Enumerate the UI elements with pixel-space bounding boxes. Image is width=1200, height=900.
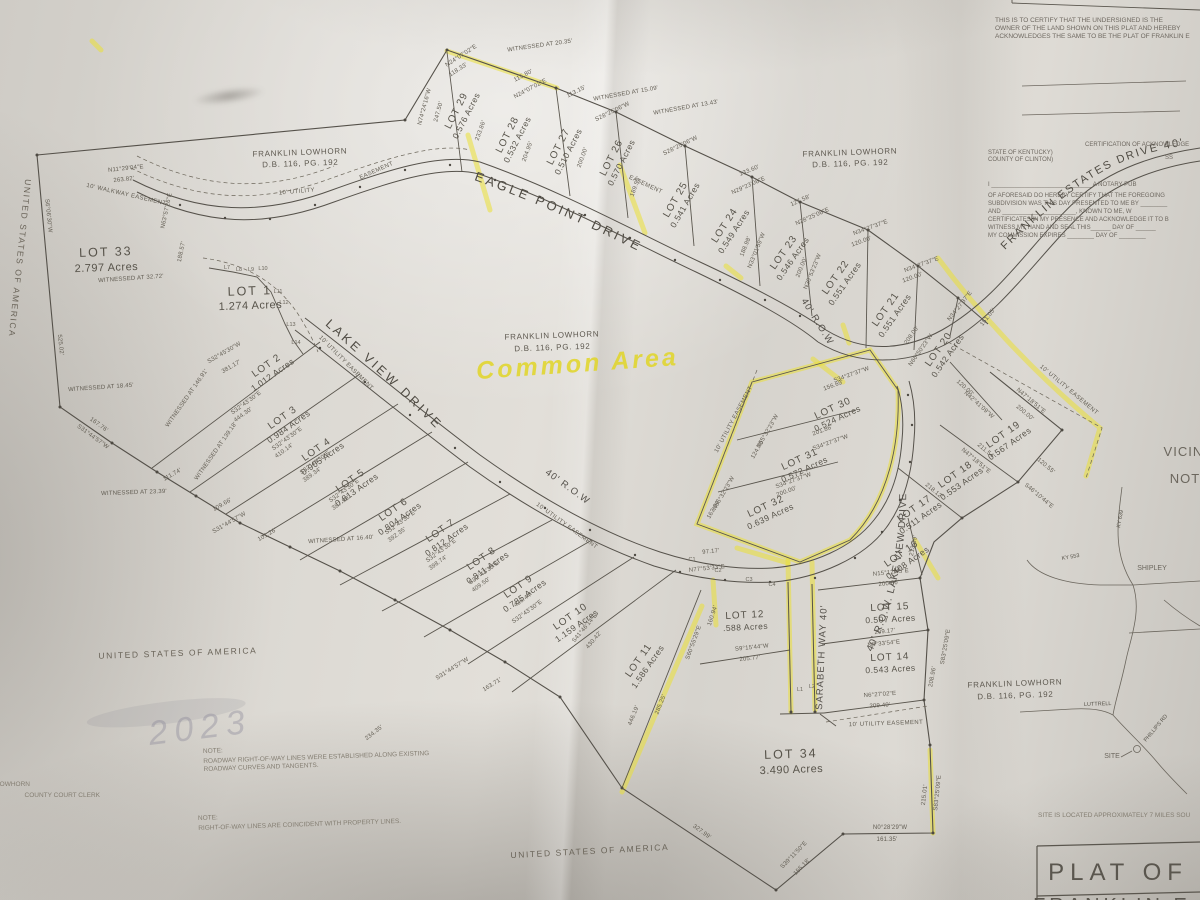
bearing-label: S31°44'57"W xyxy=(435,657,470,682)
bearing-label: S34°27'37"W xyxy=(812,434,849,453)
lot-label: LOT 343.490 Acres xyxy=(759,746,824,777)
svg-text:OWNER OF THE LAND SHOWN ON THI: OWNER OF THE LAND SHOWN ON THIS PLAT AND… xyxy=(995,25,1181,32)
highlighter-note: Common Area xyxy=(475,343,679,385)
bearing-label: N6°27'02"E xyxy=(863,691,896,699)
vicinity-road-label: PHILLIPS RD xyxy=(1143,714,1169,744)
easement-label: 10' UTILITY EASEMENT xyxy=(1038,364,1099,416)
easement-label: 10' UTILITY EASEMENT xyxy=(849,720,924,729)
svg-text:L2: L2 xyxy=(809,684,815,690)
bearing-label: 208.96' xyxy=(928,666,938,688)
bearing-label: 205.77' xyxy=(739,655,760,663)
bearing-label: WITNESSED AT 146.91' xyxy=(165,368,210,428)
svg-text:LOT 15: LOT 15 xyxy=(870,601,910,614)
plat-photo: EAGLE POINT DRIVE LAKE VIEW DRIVE 40' R.… xyxy=(0,0,1200,900)
bearing-label: 161.35' xyxy=(877,837,898,843)
lot-label: LOT 320.639 Acres xyxy=(741,491,796,531)
lot-label: LOT 12.588 Acres xyxy=(722,609,768,633)
bearing-label: 120.55' xyxy=(1036,457,1056,475)
vicinity-subtitle: NOT xyxy=(1170,471,1200,486)
site-marker xyxy=(1134,746,1141,753)
bearing-label: WITNESSED AT 32.72' xyxy=(98,274,164,285)
site-note: SITE IS LOCATED APPROXIMATELY 7 MILES SO… xyxy=(1038,812,1191,819)
bearing-label: 109.66' xyxy=(212,497,233,513)
bearing-label: S28°25'06"W xyxy=(594,101,631,123)
bearing-label: 233.86' xyxy=(475,120,488,142)
svg-text:3.490 Acres: 3.490 Acres xyxy=(759,763,823,777)
bearing-label: 155.18' xyxy=(793,858,812,877)
svg-text:D.B. 116, PG. 192: D.B. 116, PG. 192 xyxy=(977,690,1054,702)
vicinity-road-label: SHIPLEY xyxy=(1137,565,1167,572)
usa-label: UNITED STATES OF AMERICA xyxy=(510,842,669,860)
lot-label: LOT 90.785 Acres xyxy=(495,568,548,614)
svg-text:WITNESS MY HAND AND SEAL THIS_: WITNESS MY HAND AND SEAL THIS______ DAY … xyxy=(988,225,1156,231)
bearing-label: N11°29'04"E xyxy=(108,164,144,174)
lot-label: LOT 21.012 Acres xyxy=(243,347,296,393)
svg-text:FRANKLIN LOWHORN: FRANKLIN LOWHORN xyxy=(802,146,897,158)
clerk-fragment: LOWHORN xyxy=(0,781,30,788)
easement-label: 10' UTILITY xyxy=(279,187,316,196)
bearing-label: S6°06'30"W xyxy=(43,199,53,234)
svg-text:L12: L12 xyxy=(279,300,288,306)
bearing-label: N34°27'37"E xyxy=(947,290,974,322)
owner-label: FRANKLIN LOWHORND.B. 116, PG. 192 xyxy=(802,146,897,169)
bearing-label: WITNESSED AT 16.40' xyxy=(308,535,374,546)
easement-label: 10' UTILITY EASEMENT xyxy=(714,385,754,453)
svg-text:C4: C4 xyxy=(768,582,775,588)
title-block-line2: FRANKLIN E xyxy=(1033,895,1191,900)
svg-text:LOT 33: LOT 33 xyxy=(79,244,133,260)
bearing-label: 200.00' xyxy=(1015,404,1035,422)
lot-label: LOT 230.546 Acres xyxy=(765,229,811,282)
bearing-label: 209.40' xyxy=(869,702,890,709)
bearing-label: 120.00' xyxy=(851,236,873,249)
svg-text:MY COMMISSION EXPIRES ________: MY COMMISSION EXPIRES ________ DAY OF __… xyxy=(988,233,1146,239)
vicinity-road-label: LUTTRELL xyxy=(1084,701,1112,708)
bearing-label: 111.74' xyxy=(162,468,182,483)
bearing-label: N29°23'06"E xyxy=(731,176,767,196)
vicinity-road-label: KY 639 xyxy=(1116,510,1125,529)
lot-label: LOT 220.551 Acres xyxy=(817,254,863,307)
svg-text:L10: L10 xyxy=(258,266,267,272)
svg-text:AND ______________________, KN: AND ______________________, KNOWN TO ME,… xyxy=(988,209,1132,215)
bearing-label: 188.98' xyxy=(739,236,752,258)
easement-label: 10' UTILITY EASEMENT xyxy=(535,502,599,551)
vicinity-site-label: SITE xyxy=(1104,753,1120,760)
svg-text:RIGHT-OF-WAY LINES ARE COINCID: RIGHT-OF-WAY LINES ARE COINCIDENT WITH P… xyxy=(198,818,401,832)
svg-text:THIS IS TO CERTIFY THAT THE UN: THIS IS TO CERTIFY THAT THE UNDERSIGNED … xyxy=(995,17,1164,24)
bearing-label: N74°24'16"W xyxy=(417,88,433,126)
bearing-label: 234.35' xyxy=(364,724,384,742)
svg-text:2.797 Acres: 2.797 Acres xyxy=(74,261,138,275)
svg-text:COUNTY OF CLINTON): COUNTY OF CLINTON) xyxy=(988,157,1053,163)
lot-label: LOT 11.274 Acres xyxy=(218,283,283,313)
svg-text:OF AFORESAID DO HEREBY CERTIFY: OF AFORESAID DO HEREBY CERTIFY THAT THE … xyxy=(988,193,1165,199)
usa-label: UNITED STATES OF AMERICA xyxy=(7,179,34,338)
owner-label: FRANKLIN LOWHORND.B. 116, PG. 192 xyxy=(252,146,347,169)
bearing-label: N0°28'29"W xyxy=(873,825,907,831)
title-block-line1: PLAT OF xyxy=(1048,859,1188,886)
bearing-label: 188.57' xyxy=(177,241,187,263)
svg-text:1.274 Acres: 1.274 Acres xyxy=(218,299,282,313)
svg-text:FRANKLIN LOWHORN: FRANKLIN LOWHORN xyxy=(252,146,347,158)
signature-line xyxy=(1022,111,1180,115)
svg-text:0.507 Acres: 0.507 Acres xyxy=(865,613,916,626)
svg-text:LOT 34: LOT 34 xyxy=(764,746,818,762)
svg-text:C2: C2 xyxy=(714,568,721,574)
svg-text:CERTIFICATION OF ACKNOWLEDGE: CERTIFICATION OF ACKNOWLEDGE xyxy=(1085,142,1189,148)
bearing-label: N28°25'06"E xyxy=(795,207,831,227)
bearing-label: N63°57'26"E xyxy=(160,192,173,229)
svg-text:SUBDIVISION WAS THIS DAY PRESE: SUBDIVISION WAS THIS DAY PRESENTED TO ME… xyxy=(988,201,1168,207)
svg-text:D.B. 116, PG. 192: D.B. 116, PG. 192 xyxy=(262,158,339,170)
svg-text:L9: L9 xyxy=(248,267,254,273)
bearing-label: 327.99' xyxy=(691,824,711,841)
title-block: PLAT OF FRANKLIN E xyxy=(1033,842,1200,900)
svg-text:CERTIFICATES IN MY PRESENCE AN: CERTIFICATES IN MY PRESENCE AND ACKNOWLE… xyxy=(988,217,1169,223)
bearing-label: N34°27'37"E xyxy=(904,256,940,274)
bearing-label: WITNESSED AT 23.39' xyxy=(101,489,167,497)
lot-label: LOT 140.543 Acres xyxy=(864,651,915,676)
svg-text:SS: SS xyxy=(1165,155,1173,161)
bearing-label: S83°25'09"E xyxy=(933,775,943,811)
svg-text:L8: L8 xyxy=(236,267,242,273)
owner-label: FRANKLIN LOWHORND.B. 116, PG. 192 xyxy=(967,677,1062,701)
svg-text:FRANKLIN LOWHORN: FRANKLIN LOWHORN xyxy=(967,677,1062,689)
road-label-eagle-point: EAGLE POINT DRIVE xyxy=(473,169,645,255)
bearing-label: 285.25' xyxy=(654,694,667,716)
svg-text:ACKNOWLEDGES THE SAME TO BE TH: ACKNOWLEDGES THE SAME TO BE THE PLAT OF … xyxy=(995,33,1190,40)
bearing-label: 124.70' xyxy=(750,439,766,460)
svg-text:NOTE:: NOTE: xyxy=(198,814,218,822)
svg-text:I ____________________________: I ______________________________ A NOTAR… xyxy=(988,182,1136,188)
road-label-lake-view: LAKE VIEW DRIVE xyxy=(323,317,446,433)
svg-text:L1: L1 xyxy=(797,687,803,693)
bearing-label: 97.17' xyxy=(702,548,720,556)
lot-labels: LOT 11.274 Acres LOT 21.012 Acres LOT 30… xyxy=(74,86,1033,777)
lot-label: LOT 332.797 Acres xyxy=(74,244,139,275)
svg-text:0.543 Acres: 0.543 Acres xyxy=(865,663,916,676)
easement-label: 10' WALKWAY EASEMENT xyxy=(86,183,167,207)
svg-text:C3: C3 xyxy=(745,577,752,583)
bearing-label: 430.42' xyxy=(585,630,603,650)
svg-text:D.B. 116, PG. 192: D.B. 116, PG. 192 xyxy=(812,158,889,170)
certification-text: THIS IS TO CERTIFY THAT THE UNDERSIGNED … xyxy=(995,0,1200,115)
svg-text:FRANKLIN LOWHORN: FRANKLIN LOWHORN xyxy=(504,329,599,341)
usa-label: UNITED STATES OF AMERICA xyxy=(98,645,257,661)
bearing-label: 167.76' xyxy=(88,417,108,434)
svg-text:LOT 14: LOT 14 xyxy=(870,651,910,664)
bearing-label: 247.50' xyxy=(433,101,444,123)
clerk-fragment: COUNTY COURT CLERK xyxy=(25,792,101,799)
lot-label: LOT 210.551 Acres xyxy=(867,286,913,339)
bearing-label: N42°41'09"W xyxy=(963,390,995,420)
bearing-label: WITNESSED AT 15.09' xyxy=(593,85,659,102)
svg-text:L14: L14 xyxy=(291,340,300,346)
bearing-label: S31°44'57"W xyxy=(212,511,248,535)
bearing-label: S46°10'44"E xyxy=(1023,482,1054,510)
vicinity-road-label: KY 553 xyxy=(1061,553,1080,562)
svg-text:C1: C1 xyxy=(688,557,695,563)
bearing-label: WITNESSED AT 139.18' xyxy=(194,421,239,481)
svg-text:LOT 1: LOT 1 xyxy=(227,283,272,299)
bearing-label: S9°15'44"W xyxy=(735,643,770,653)
lot-label: LOT 250.541 Acres xyxy=(658,175,701,229)
lot-label: LOT 111.586 Acres xyxy=(620,637,666,690)
bearing-label: 163.71' xyxy=(482,677,503,693)
bearing-label: WITNESSED AT 20.35' xyxy=(507,38,573,53)
bearing-label: 113.15' xyxy=(566,85,587,100)
bearing-label: 204.95' xyxy=(522,141,535,163)
svg-text:NOTE:: NOTE: xyxy=(203,747,223,755)
lot-label: LOT 150.507 Acres xyxy=(864,601,915,626)
svg-text:STATE OF KENTUCKY): STATE OF KENTUCKY) xyxy=(988,150,1053,156)
svg-text:L13: L13 xyxy=(286,322,295,328)
bearing-label: 446.19' xyxy=(627,705,640,727)
bearing-label: 263.82' xyxy=(113,176,134,184)
bearing-label: N34°27'37"E xyxy=(853,219,889,237)
vicinity-title: VICINITY xyxy=(1164,444,1200,459)
bearing-label: S28°25'06"W xyxy=(662,135,699,157)
plat-drawing: EAGLE POINT DRIVE LAKE VIEW DRIVE 40' R.… xyxy=(0,0,1200,900)
bearing-label: 525.02' xyxy=(56,334,64,355)
vicinity-map: VICINITY NOT SHIPLEY KY 639 KY 553 LUTTR… xyxy=(1020,444,1200,794)
notes: NOTE:ROADWAY RIGHT-OF-WAY LINES WERE EST… xyxy=(0,740,1191,832)
bearing-label: 200.00' xyxy=(577,147,590,169)
lot-label: LOT 270.510 Acres xyxy=(542,122,584,176)
date-stamp: 2023 xyxy=(85,692,253,761)
bearing-label: WITNESSED AT 18.45' xyxy=(68,383,134,394)
svg-text:L11: L11 xyxy=(274,289,283,295)
signature-line xyxy=(1022,81,1186,86)
lot-label: LOT 290.576 Acres xyxy=(440,86,482,140)
bearing-label: WITNESSED AT 13.43' xyxy=(653,99,719,116)
svg-text:L7: L7 xyxy=(224,265,230,271)
svg-text:.588 Acres: .588 Acres xyxy=(723,621,769,633)
bearing-label: 163.94' xyxy=(706,499,722,520)
lot-label: LOT 300.524 Acres xyxy=(808,393,863,433)
bearing-label: 381.17' xyxy=(221,359,242,375)
bearing-label: S83°25'09"E xyxy=(940,629,952,665)
svg-text:LOT 12: LOT 12 xyxy=(725,609,765,622)
bearing-label: 215.01' xyxy=(921,784,929,805)
bearing-label: 101.26' xyxy=(257,527,278,543)
